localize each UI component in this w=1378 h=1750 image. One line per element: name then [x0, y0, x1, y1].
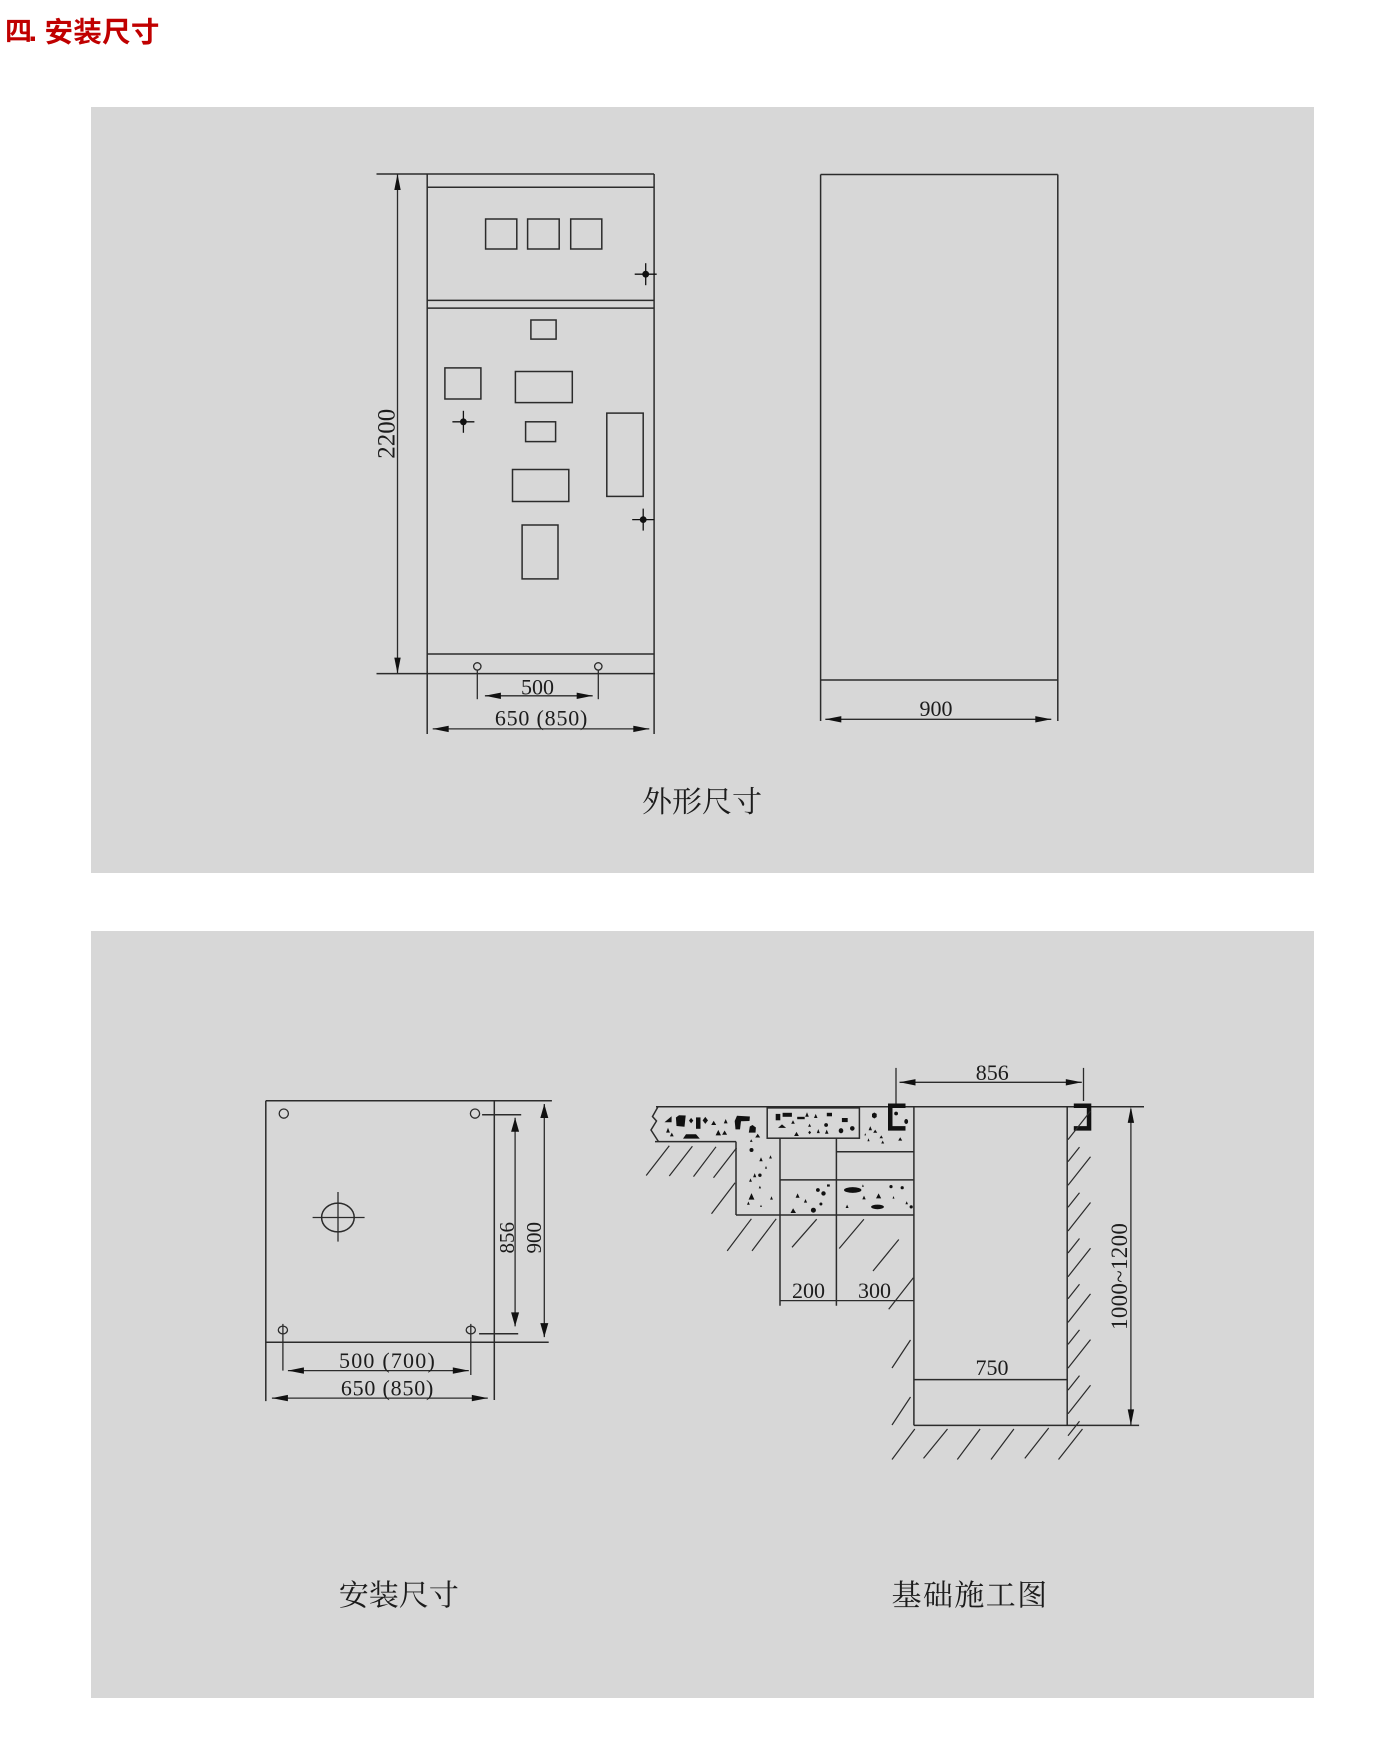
svg-text:650 (850): 650 (850) [341, 1376, 434, 1401]
svg-text:500: 500 [521, 675, 554, 700]
svg-text:856: 856 [495, 1222, 519, 1254]
svg-text:1000~1200: 1000~1200 [1107, 1223, 1132, 1330]
svg-text:200: 200 [792, 1278, 825, 1303]
svg-text:300: 300 [858, 1278, 891, 1303]
svg-text:2200: 2200 [374, 409, 401, 459]
svg-text:500 (700): 500 (700) [339, 1348, 436, 1373]
svg-text:900: 900 [920, 696, 953, 721]
svg-text:856: 856 [976, 1060, 1009, 1085]
svg-text:650 (850): 650 (850) [495, 705, 588, 730]
svg-text:900: 900 [522, 1222, 546, 1254]
svg-text:750: 750 [976, 1355, 1009, 1380]
